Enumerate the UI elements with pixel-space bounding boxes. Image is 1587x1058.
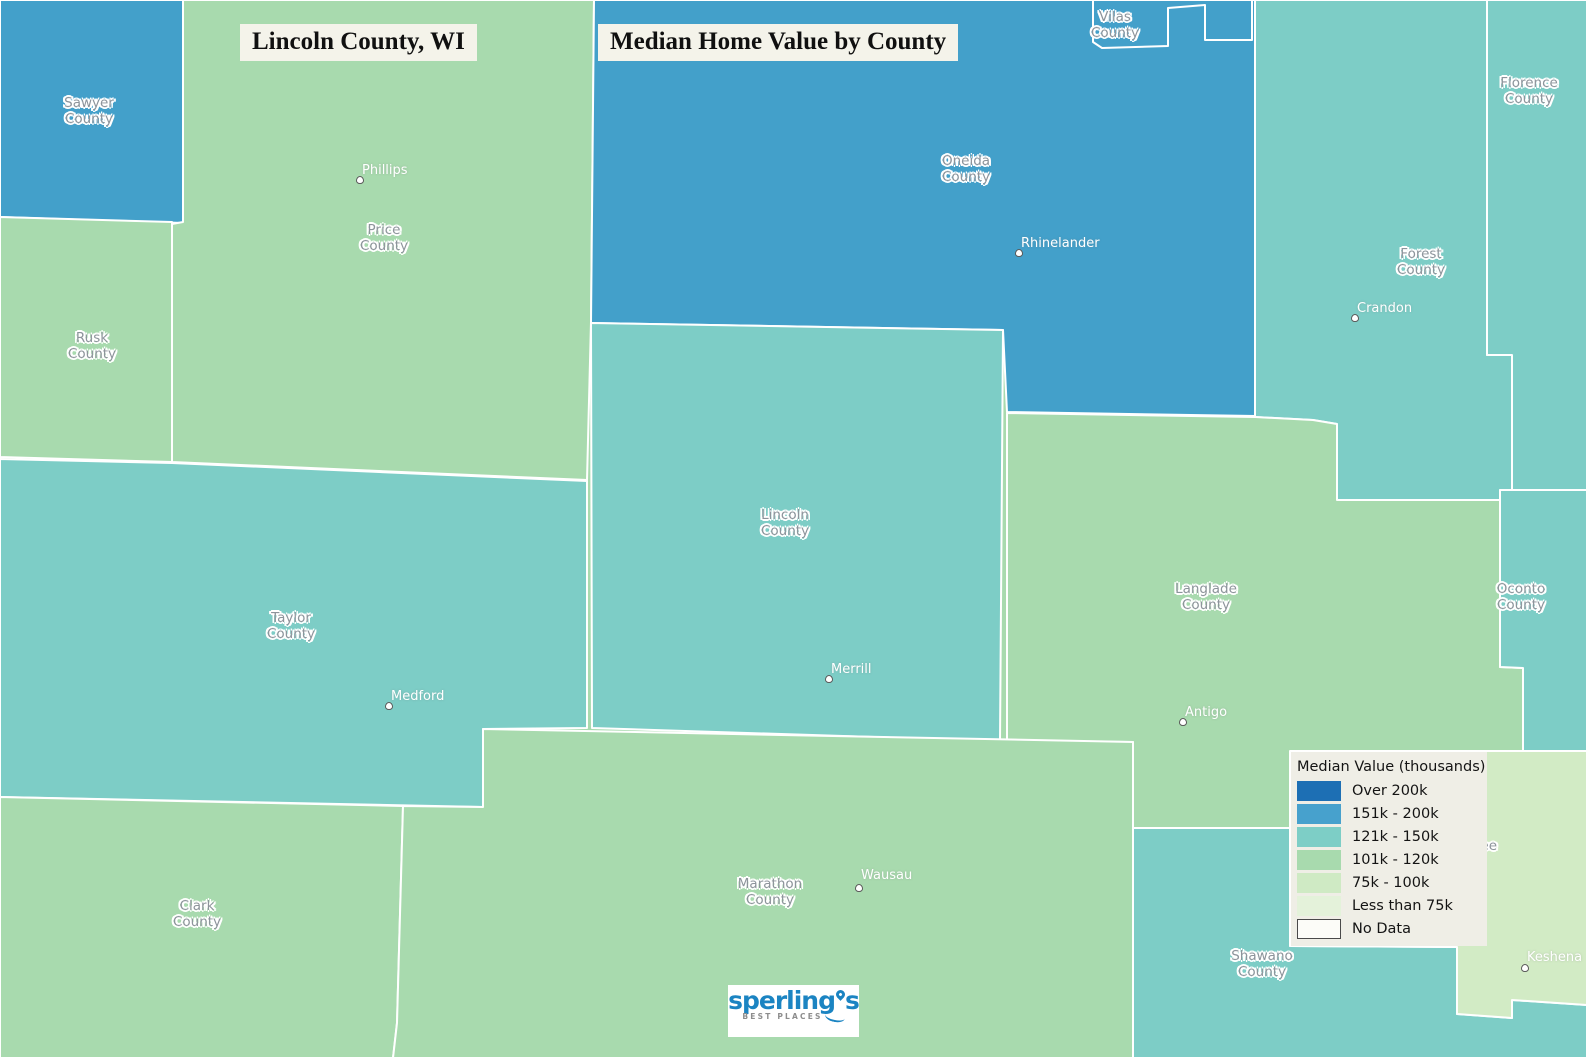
legend-swatch-101k-120k xyxy=(1297,850,1341,870)
legend-label-over-200k: Over 200k xyxy=(1352,783,1428,799)
legend-row-over-200k: Over 200k xyxy=(1297,779,1487,802)
legend-panel: Median Value (thousands) Over 200k 151k … xyxy=(1291,752,1487,946)
page-title-map: Median Home Value by County xyxy=(598,24,958,61)
city-marker-antigo[interactable] xyxy=(1179,718,1187,726)
legend-row-121k-150k: 121k - 150k xyxy=(1297,825,1487,848)
page-title-county: Lincoln County, WI xyxy=(240,24,477,61)
city-marker-keshena[interactable] xyxy=(1521,964,1529,972)
sperlings-wordmark: sperlings xyxy=(728,988,859,1014)
county-shape-price[interactable] xyxy=(172,0,594,480)
legend-label-151k-200k: 151k - 200k xyxy=(1352,806,1439,822)
legend-title: Median Value (thousands) xyxy=(1297,757,1487,777)
legend-swatch-151k-200k xyxy=(1297,804,1341,824)
legend-swatch-less-than-75k xyxy=(1297,896,1341,916)
city-marker-merrill[interactable] xyxy=(825,675,833,683)
city-marker-wausau[interactable] xyxy=(855,884,863,892)
brand-text-tail: s xyxy=(845,986,859,1015)
legend-row-75k-100k: 75k - 100k xyxy=(1297,871,1487,894)
logo-tagline-row: BEST PLACES xyxy=(728,1011,859,1022)
brand-text-head: sperling xyxy=(728,986,835,1015)
legend-swatch-121k-150k xyxy=(1297,827,1341,847)
legend-label-no-data: No Data xyxy=(1352,921,1411,937)
legend-row-151k-200k: 151k - 200k xyxy=(1297,802,1487,825)
legend-swatch-no-data xyxy=(1297,919,1341,939)
legend-row-101k-120k: 101k - 120k xyxy=(1297,848,1487,871)
legend-label-75k-100k: 75k - 100k xyxy=(1352,875,1429,891)
county-shape-clark[interactable] xyxy=(0,797,403,1058)
city-marker-phillips[interactable] xyxy=(356,176,364,184)
city-marker-rhinelander[interactable] xyxy=(1015,249,1023,257)
city-marker-crandon[interactable] xyxy=(1351,314,1359,322)
county-shape-sawyer[interactable] xyxy=(0,0,183,223)
logo-tagline: BEST PLACES xyxy=(742,1012,822,1021)
sperlings-logo[interactable]: sperlings BEST PLACES xyxy=(728,985,859,1037)
legend-label-101k-120k: 101k - 120k xyxy=(1352,852,1439,868)
legend-label-less-than-75k: Less than 75k xyxy=(1352,898,1453,914)
legend-label-121k-150k: 121k - 150k xyxy=(1352,829,1439,845)
legend-swatch-over-200k xyxy=(1297,781,1341,801)
legend-row-less-than-75k: Less than 75k xyxy=(1297,894,1487,917)
legend-swatch-75k-100k xyxy=(1297,873,1341,893)
county-shape-rusk[interactable] xyxy=(0,217,172,462)
legend-row-no-data: No Data xyxy=(1297,917,1487,940)
city-marker-medford[interactable] xyxy=(385,702,393,710)
map-canvas: Sawyer County Price County Rusk County O… xyxy=(0,0,1587,1058)
county-shape-lincoln[interactable] xyxy=(591,323,1003,741)
